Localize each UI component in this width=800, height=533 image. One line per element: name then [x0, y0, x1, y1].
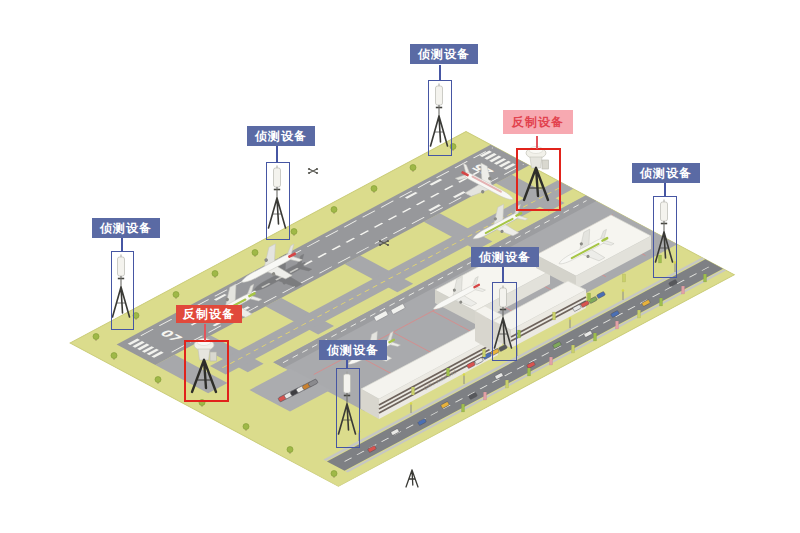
label-detection-equipment-left: 侦测设备	[92, 218, 160, 238]
label-detection-equipment-upper-left: 侦测设备	[247, 126, 315, 146]
detection-zone-box	[266, 162, 290, 240]
leader-line	[502, 267, 504, 283]
leader-line	[204, 324, 206, 341]
airport-security-diagram: 07 25	[0, 0, 800, 533]
label-detection-equipment-top: 侦测设备	[410, 44, 478, 64]
leader-line	[276, 146, 278, 163]
detection-zone-box	[428, 80, 452, 156]
label-detection-equipment-right: 侦测设备	[632, 163, 700, 183]
leader-line	[536, 136, 538, 149]
label-detection-equipment-bottom: 侦测设备	[319, 340, 387, 360]
drone-icon	[308, 168, 318, 174]
counter-zone-box	[184, 340, 229, 402]
label-detection-equipment-center: 侦测设备	[471, 247, 539, 267]
detection-zone-box	[492, 282, 517, 361]
detection-zone-box	[336, 368, 360, 448]
label-counter-equipment-upper-right: 反制设备	[503, 110, 573, 134]
counter-zone-box	[516, 148, 561, 211]
small-tripod-icon	[406, 470, 418, 487]
label-counter-equipment-lower-left: 反制设备	[176, 305, 242, 323]
detection-zone-box	[111, 251, 134, 330]
leader-line	[664, 183, 666, 197]
leader-line	[439, 65, 441, 81]
detection-zone-box	[653, 196, 677, 278]
leader-line	[121, 238, 123, 252]
